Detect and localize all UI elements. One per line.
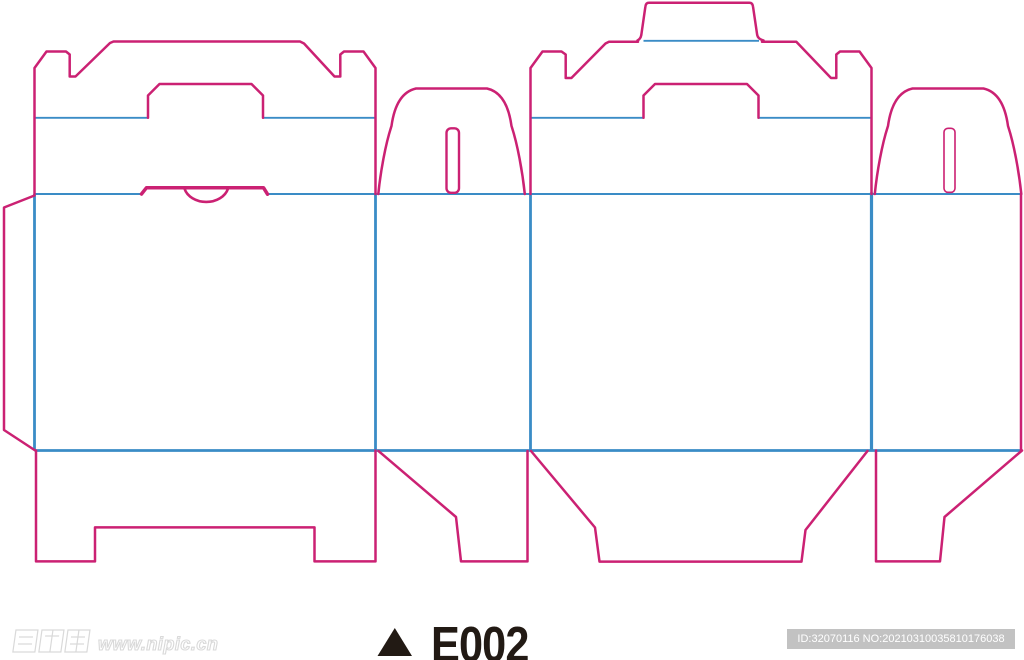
svg-text:E002: E002 — [431, 617, 529, 660]
svg-text:www.nipic.cn: www.nipic.cn — [98, 634, 218, 654]
